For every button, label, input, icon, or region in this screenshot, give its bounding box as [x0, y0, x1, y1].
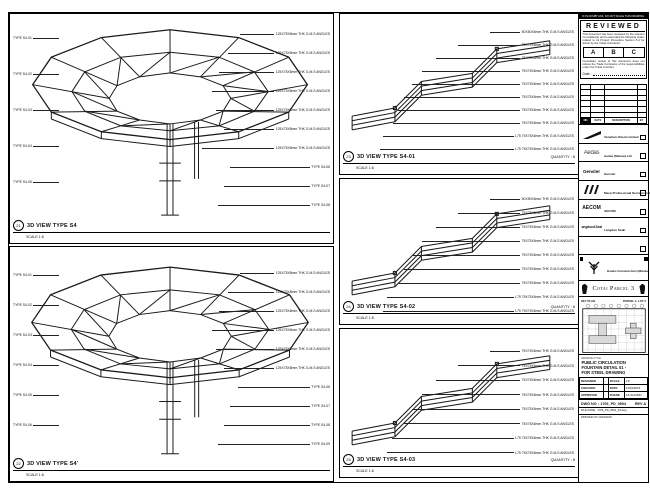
callout-label: 75X75X6mm THK G.M.S ANGLES [522, 239, 574, 243]
view-3d-type-s4-prime: TYPE S4-01TYPE S4-02TYPE S4-03TYPE S4-04… [9, 246, 334, 482]
leader-line [398, 283, 520, 284]
party-row-aecom: AECOM AECOM [579, 199, 648, 218]
view-title: 3D VIEW TYPE S4-02 [357, 304, 415, 310]
leader-line [240, 273, 274, 274]
approval-checkbox [640, 209, 646, 215]
contractor-name: Hsabo Construction (Macau) CO., LTD. [607, 269, 650, 273]
leader-line [380, 149, 514, 150]
dwg-no-value: 1706_PD_0504 [600, 402, 626, 406]
callout: 75X75X6mm THK G.M.S ANGLES [383, 239, 574, 243]
callout: TYPE S4-05 [13, 393, 59, 397]
callout: 75X75X6mm THK G.M.S ANGLES [383, 281, 574, 285]
leader-line [228, 292, 274, 293]
callout-label: 125X75X8mm THK G.M.S ANGLES [276, 328, 330, 332]
callout-list-right: 125X75X8mm THK G.M.S ANGLES125X75X8mm TH… [202, 32, 330, 207]
callout: L75 75X75X6mm THK G.M.S ANGLES [387, 436, 574, 440]
approval-checkbox [640, 135, 646, 141]
leader-line [404, 97, 520, 98]
callout: TYPE S4-06 [13, 423, 59, 427]
callout-label: 75X75X6mm THK G.M.S ANGLES [522, 82, 574, 86]
reviewed-paragraph-2: Consultant review of this document does … [583, 60, 645, 70]
view-3d-type-s4-02: 50X50X6mm THK G.M.S ANGLES75X75X6mm THK … [339, 178, 579, 325]
approved-label: APPROVED [580, 392, 604, 399]
callout-label: TYPE S4-02 [13, 303, 32, 307]
callout-label: 75X75X6mm THK G.M.S ANGLES [522, 407, 574, 411]
callout: 75X75X6mm THK G.M.S ANGLES [387, 364, 574, 368]
callout-label: 75X75X6mm THK G.M.S ANGLES [522, 378, 574, 382]
leader-line [33, 275, 59, 276]
callout: TYPE S4-07 [212, 404, 330, 408]
callout-label: TYPE S4-04 [13, 144, 32, 148]
callout-list: 50X50X6mm THK G.M.S ANGLES75X75X6mm THK … [380, 30, 574, 151]
reviewed-stamp: REVIEWED This document has been reviewed… [580, 20, 647, 79]
leader-line [238, 387, 310, 388]
leader-line [219, 311, 274, 312]
view-quantity: QUANTITY : 8 [551, 458, 575, 462]
callout-list-left: TYPE S4-01TYPE S4-02TYPE S4-03TYPE S4-04… [13, 36, 59, 184]
leader-line [412, 409, 520, 410]
view-3d-type-s4-03: 75X75X6mm THK G.M.S ANGLES75X75X6mm THK … [339, 328, 579, 478]
callout-label: 50X50X6mm THK G.M.S ANGLES [522, 30, 574, 34]
callout: 125X75X8mm THK G.M.S ANGLES [202, 89, 330, 93]
callout-label: TYPE S4-05 [13, 180, 32, 184]
leader-line [436, 227, 520, 228]
approval-checkbox [640, 172, 646, 178]
rev-col-desc: DESCRIPTION [605, 118, 637, 124]
party-name: Gensler [604, 172, 616, 176]
venetian-logo-icon [581, 129, 602, 139]
callout-label: TYPE S4-07 [311, 404, 330, 408]
callout-label: TYPE S4-07 [311, 184, 330, 188]
callout: 75X75X6mm THK G.M.S ANGLES [387, 422, 574, 426]
callout-label: 125X75X8mm THK G.M.S ANGLES [276, 366, 330, 370]
callout: TYPE S4-01 [13, 273, 59, 277]
leader-line [383, 136, 514, 137]
keyplan-label: KEY PLAN [581, 299, 595, 303]
callout-list: 75X75X6mm THK G.M.S ANGLES75X75X6mm THK … [387, 349, 574, 455]
leader-line [392, 438, 514, 439]
contractor-block: Hsabo Construction (Macau) CO., LTD. [579, 254, 648, 280]
callout-label: TYPE S4-03 [13, 108, 32, 112]
view-title: 3D VIEW TYPE S4-03 [357, 457, 415, 463]
callout: TYPE S4-06 [212, 385, 330, 389]
callout-label: 75X75X6mm THK G.M.S ANGLES [522, 422, 574, 426]
aecom-logo: AECOM [581, 205, 602, 211]
callout: TYPE S4-07 [202, 184, 330, 188]
leader-line [228, 53, 274, 54]
callout: 125X75X8mm THK G.M.S ANGLES [212, 290, 330, 294]
callout-label: TYPE S4-06 [13, 423, 32, 427]
leader-line [224, 186, 310, 187]
grade-b: B [604, 48, 624, 57]
leader-line [230, 167, 310, 168]
langdon-seah-logo: Langdon&Seah [581, 225, 602, 229]
leader-line [422, 241, 520, 242]
leader-line [212, 91, 274, 92]
callout-label: 75X75X6mm THK G.M.S ANGLES [522, 108, 574, 112]
callout: 50X50X6mm THK G.M.S ANGLES [380, 30, 574, 34]
keyplan-lot: PARCEL 1, LOT 2 [623, 299, 646, 303]
party-name: Venetian Orient Limited [604, 135, 639, 139]
callout: 125X75X8mm THK G.M.S ANGLES [202, 51, 330, 55]
rev-col-no: NO. [581, 118, 591, 124]
dwg-no-label: DWG NO : [581, 402, 599, 406]
callout: 75X75X6mm THK G.M.S ANGLES [387, 349, 574, 353]
leader-line [412, 84, 520, 85]
callout: 75X75X6mm THK G.M.S ANGLES [387, 407, 574, 411]
callout: TYPE S4-04 [13, 363, 59, 367]
leader-line [458, 45, 520, 46]
view-title: 3D VIEW TYPE S4-01 [357, 154, 415, 160]
callout: TYPE S4-08 [202, 203, 330, 207]
key-plan-drawing [582, 303, 646, 353]
leader-line [33, 146, 59, 147]
callout: 75X75X6mm THK G.M.S ANGLES [380, 121, 574, 125]
leader-line [230, 406, 310, 407]
view-ref-circle: 23 [343, 151, 354, 162]
callout: 125X75X8mm THK G.M.S ANGLES [212, 271, 330, 275]
drawing-info-table: DESIGNED - SCALE 1:8 CHECKED - DATE 13/0… [579, 377, 648, 399]
callout-label: 125X75X8mm THK G.M.S ANGLES [276, 290, 330, 294]
designed-label: DESIGNED [580, 378, 604, 385]
view-title-bar: 23 3D VIEW TYPE S4-01 QUANTITY : 8 [343, 151, 575, 164]
callout-label: 75X75X6mm THK G.M.S ANGLES [522, 211, 574, 215]
phase-label: PHASE [608, 392, 624, 399]
callout: TYPE S4-03 [13, 108, 59, 112]
callout: 125X75X8mm THK G.M.S ANGLES [202, 127, 330, 131]
date-label: Date : [583, 72, 592, 76]
callout-label: 75X75X6mm THK G.M.S ANGLES [522, 267, 574, 271]
leader-line [33, 110, 59, 111]
callout: 75X75X6mm THK G.M.S ANGLES [380, 108, 574, 112]
leader-line [33, 335, 59, 336]
callout-label: 125X75X8mm THK G.M.S ANGLES [276, 108, 330, 112]
callout-list-left: TYPE S4-01TYPE S4-02TYPE S4-03TYPE S4-04… [13, 273, 59, 427]
view-ref-circle: 25 [343, 454, 354, 465]
meca-logo-icon [581, 185, 602, 194]
callout: 75X75X6mm THK G.M.S ANGLES [380, 82, 574, 86]
printed-on-row: PRINTED ON 13/04/2015 [579, 414, 648, 420]
callout-label: 75X75X6mm THK G.M.S ANGLES [522, 253, 574, 257]
view-ref-circle: 24 [343, 301, 354, 312]
leader-line [490, 32, 520, 33]
leader-line [224, 368, 274, 369]
callout: TYPE S4-03 [13, 333, 59, 337]
aedas-logo: Aedas [581, 150, 602, 156]
callout-label: TYPE S4-08 [311, 423, 330, 427]
callout: L75 75X75X6mm THK G.M.S ANGLES [380, 134, 574, 138]
corner-mark [644, 257, 648, 261]
callout: TYPE S4-04 [13, 144, 59, 148]
view-scale: SCALE 1:8 [26, 473, 44, 477]
revision-table: NO. DATE DESCRIPTION BY [580, 84, 646, 125]
view-scale: SCALE 1:8 [356, 166, 374, 170]
contractor-logo-icon [583, 260, 604, 275]
callout: L75 75X75X6mm THK G.M.S ANGLES [383, 295, 574, 299]
callout: 125X75X8mm THK G.M.S ANGLES [212, 366, 330, 370]
callout: 75X75X6mm THK G.M.S ANGLES [380, 95, 574, 99]
party-name: Aedas (Macau) Ltd. [604, 154, 632, 158]
callout: TYPE S4-08 [212, 423, 330, 427]
leader-line [404, 423, 520, 424]
callout-label: 125X75X8mm THK G.M.S ANGLES [276, 70, 330, 74]
approval-checkbox [640, 190, 646, 196]
callout-label: 125X75X8mm THK G.M.S ANGLES [276, 127, 330, 131]
corner-mark [580, 257, 584, 261]
leader-line [387, 297, 514, 298]
callout: 50X50X6mm THK G.M.S ANGLES [383, 197, 574, 201]
callout-label: TYPE S4-06 [311, 385, 330, 389]
callout-label: 75X75X6mm THK G.M.S ANGLES [522, 225, 574, 229]
callout-label: 75X75X6mm THK G.M.S ANGLES [522, 69, 574, 73]
callout-label: TYPE S4-05 [13, 393, 32, 397]
callout: 125X75X8mm THK G.M.S ANGLES [212, 328, 330, 332]
leader-line [412, 255, 520, 256]
leader-line [404, 269, 520, 270]
leader-line [398, 110, 520, 111]
phase-value: AS SHOWN [624, 392, 647, 399]
view-3d-type-s4: TYPE S4-01TYPE S4-02TYPE S4-03TYPE S4-04… [9, 13, 334, 244]
callout: 75X75X6mm THK G.M.S ANGLES [380, 69, 574, 73]
view-scale: SCALE 1:8 [26, 235, 44, 239]
callout-label: TYPE S4-03 [13, 333, 32, 337]
leader-line [33, 74, 59, 75]
reviewed-heading: REVIEWED [583, 23, 645, 32]
callout-label: 125X75X8mm THK G.M.S ANGLES [276, 271, 330, 275]
callout-label: 125X75X8mm THK G.M.S ANGLES [276, 32, 330, 36]
callout-label: 75X75X6mm THK G.M.S ANGLES [522, 95, 574, 99]
date-fill-line [593, 72, 645, 76]
leader-line [393, 123, 520, 124]
callout: 75X75X6mm THK G.M.S ANGLES [380, 43, 574, 47]
leader-line [240, 34, 274, 35]
party-row-blank [579, 236, 648, 255]
leader-line [224, 129, 274, 130]
callout-label: 125X75X8mm THK G.M.S ANGLES [276, 89, 330, 93]
view-title-bar: 24 3D VIEW TYPE S4-02 QUANTITY : 8 [343, 301, 575, 314]
callout-list-right: 125X75X8mm THK G.M.S ANGLES125X75X8mm TH… [212, 271, 330, 446]
drawing-title-block: DRAWING TITLE PUBLIC CIRCULATION FOUNTAI… [579, 354, 648, 376]
callout: 75X75X6mm THK G.M.S ANGLES [383, 253, 574, 257]
callout-label: TYPE S4-06 [311, 165, 330, 169]
callout-label: L75 75X75X6mm THK G.M.S ANGLES [515, 134, 574, 138]
callout-label: TYPE S4-02 [13, 72, 32, 76]
party-row-meca: Meca Professional Services Ltd. [579, 180, 648, 199]
approval-checkbox [640, 228, 646, 234]
callout-label: 75X75X6mm THK G.M.S ANGLES [522, 121, 574, 125]
leader-line [224, 425, 310, 426]
leader-line [202, 148, 274, 149]
view-ref-circle: 22 [13, 458, 24, 469]
callout: TYPE S4-06 [202, 165, 330, 169]
view-title-bar: 25 3D VIEW TYPE S4-03 QUANTITY : 8 [343, 454, 575, 467]
leader-line [33, 182, 59, 183]
callout: TYPE S4-01 [13, 36, 59, 40]
approval-checkbox [640, 153, 646, 159]
callout-label: 125X75X8mm THK G.M.S ANGLES [276, 347, 330, 351]
callout-label: 75X75X6mm THK G.M.S ANGLES [522, 43, 574, 47]
view-title: 3D VIEW TYPE S4' [27, 461, 78, 467]
title-block: IF IN DOUBT ASK. DO NOT SCALE THIS DRAWI… [578, 13, 648, 482]
checked-label: CHECKED [580, 385, 604, 392]
party-name: AECOM [604, 209, 616, 213]
date-label: DATE [608, 385, 624, 392]
callout: 75X75X6mm THK G.M.S ANGLES [383, 211, 574, 215]
leader-line [33, 38, 59, 39]
revision-header-row: NO. DATE DESCRIPTION BY [581, 118, 646, 124]
callout: TYPE S4-02 [13, 303, 59, 307]
leader-line [458, 365, 520, 366]
reviewed-paragraph-1: This document has been reviewed by the r… [583, 33, 645, 46]
gensler-logo: Gensler [581, 169, 602, 174]
view-quantity: QUANTITY : 8 [551, 305, 575, 309]
callout-label: TYPE S4-09 [311, 442, 330, 446]
leader-line [490, 351, 520, 352]
callout-label: 50X50X6mm THK G.M.S ANGLES [522, 197, 574, 201]
revision-badge: REV A [635, 402, 646, 406]
drawing-number-row: DWG NO : 1706_PD_0504 REV A [579, 399, 648, 407]
rev-col-by: BY [637, 118, 646, 124]
project-banner: Cotai Parcel 3 [579, 280, 648, 297]
leader-line [33, 305, 59, 306]
callout: 125X75X8mm THK G.M.S ANGLES [212, 347, 330, 351]
callout: 125X75X8mm THK G.M.S ANGLES [202, 70, 330, 74]
callout-label: 75X75X6mm THK G.M.S ANGLES [522, 56, 574, 60]
grade-c: C [624, 48, 643, 57]
approval-checkbox [640, 246, 646, 252]
callout-label: 125X75X8mm THK G.M.S ANGLES [276, 309, 330, 313]
review-grade-row: A B C [583, 47, 645, 58]
callout-label: TYPE S4-01 [13, 273, 32, 277]
view-title-bar: 22 3D VIEW TYPE S4' [13, 458, 330, 471]
callout-label: 75X75X6mm THK G.M.S ANGLES [522, 364, 574, 368]
view-ref-circle: 21 [13, 220, 24, 231]
callout-label: 75X75X6mm THK G.M.S ANGLES [522, 349, 574, 353]
banner-finial-icon [639, 284, 645, 295]
drawing-sheet: TYPE S4-01TYPE S4-02TYPE S4-03TYPE S4-04… [8, 12, 649, 483]
party-row-aedas: Aedas Aedas (Macau) Ltd. [579, 143, 648, 162]
leader-line [33, 425, 59, 426]
leader-line [436, 380, 520, 381]
callout: 125X75X8mm THK G.M.S ANGLES [212, 309, 330, 313]
leader-line [218, 444, 310, 445]
callout-label: TYPE S4-04 [13, 363, 32, 367]
view-3d-type-s4-01: 50X50X6mm THK G.M.S ANGLES75X75X6mm THK … [339, 13, 579, 175]
leader-line [219, 72, 274, 73]
callout-label: 125X75X8mm THK G.M.S ANGLES [276, 146, 330, 150]
party-name: Langdon Seah [604, 228, 625, 232]
view-title-bar: 21 3D VIEW TYPE S4 [13, 220, 330, 233]
leader-line [212, 330, 274, 331]
callout-list: 50X50X6mm THK G.M.S ANGLES75X75X6mm THK … [383, 197, 574, 313]
view-scale: SCALE 1:8 [356, 469, 374, 473]
callout: TYPE S4-09 [212, 442, 330, 446]
leader-line [490, 199, 520, 200]
party-row-venetian: Venetian Orient Limited [579, 124, 648, 143]
date-value: 13/04/2015 [624, 385, 647, 392]
project-name: Cotai Parcel 3 [593, 285, 635, 292]
leader-line [422, 394, 520, 395]
view-quantity: QUANTITY : 8 [551, 155, 575, 159]
callout: 75X75X6mm THK G.M.S ANGLES [380, 56, 574, 60]
callout-label: L75 75X75X6mm THK G.M.S ANGLES [515, 436, 574, 440]
callout: 75X75X6mm THK G.M.S ANGLES [387, 378, 574, 382]
leader-line [33, 395, 59, 396]
callout-label: TYPE S4-01 [13, 36, 32, 40]
scale-value: 1:8 [624, 378, 647, 385]
callout-label: 75X75X6mm THK G.M.S ANGLES [522, 393, 574, 397]
callout-label: L75 75X75X6mm THK G.M.S ANGLES [515, 295, 574, 299]
leader-line [33, 365, 59, 366]
rev-col-date: DATE [591, 118, 605, 124]
callout: TYPE S4-02 [13, 72, 59, 76]
callout: 125X75X8mm THK G.M.S ANGLES [202, 146, 330, 150]
leader-line [387, 452, 514, 453]
leader-line [422, 71, 520, 72]
leader-line [216, 110, 274, 111]
callout-label: TYPE S4-08 [311, 203, 330, 207]
banner-finial-icon [582, 284, 588, 295]
scale-label: SCALE [608, 378, 624, 385]
callout: 125X75X8mm THK G.M.S ANGLES [202, 108, 330, 112]
leader-line [218, 205, 310, 206]
leader-line [458, 213, 520, 214]
view-title: 3D VIEW TYPE S4 [27, 223, 77, 229]
callout: 75X75X6mm THK G.M.S ANGLES [383, 267, 574, 271]
reviewed-date-row: Date : [583, 72, 645, 76]
drawing-title-line-3: FOR STEEL DRAWING [582, 370, 646, 375]
disclaimer-strip: IF IN DOUBT ASK. DO NOT SCALE THIS DRAWI… [579, 13, 648, 19]
party-row-langdon-seah: Langdon&Seah Langdon Seah [579, 217, 648, 236]
grade-a: A [584, 48, 604, 57]
leader-line [436, 58, 520, 59]
view-scale: SCALE 1:8 [356, 316, 374, 320]
callout-label: 75X75X6mm THK G.M.S ANGLES [522, 281, 574, 285]
party-row-gensler: Gensler Gensler [579, 161, 648, 180]
callout: 125X75X8mm THK G.M.S ANGLES [202, 32, 330, 36]
callout-label: 125X75X8mm THK G.M.S ANGLES [276, 51, 330, 55]
callout: TYPE S4-05 [13, 180, 59, 184]
callout: 75X75X6mm THK G.M.S ANGLES [387, 393, 574, 397]
leader-line [216, 349, 274, 350]
callout: 75X75X6mm THK G.M.S ANGLES [383, 225, 574, 229]
